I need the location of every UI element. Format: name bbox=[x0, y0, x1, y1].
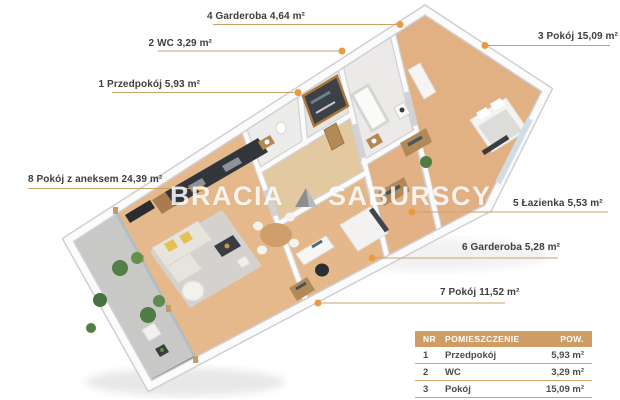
legend-header-nr: NR bbox=[423, 334, 445, 344]
room-label-4: 4 Garderoba 4,64 m² bbox=[207, 11, 305, 22]
room-label-7: 7 Pokój 11,52 m² bbox=[440, 287, 519, 298]
room-label-2: 2 WC 3,29 m² bbox=[149, 38, 212, 49]
legend-row-2-nr: 2 bbox=[423, 367, 445, 378]
room-label-1: 1 Przedpokój 5,93 m² bbox=[99, 79, 200, 90]
legend-row-3-nr: 3 bbox=[423, 384, 445, 395]
legend-row-3: 3 Pokój 15,09 m² bbox=[415, 381, 592, 398]
floorplan-page: 4 Garderoba 4,64 m² 2 WC 3,29 m² 1 Przed… bbox=[0, 0, 620, 400]
legend-row-1: 1 Przedpokój 5,93 m² bbox=[415, 347, 592, 364]
room-label-8: 8 Pokój z aneksem 24,39 m² bbox=[28, 174, 162, 185]
legend-row-3-room: Pokój bbox=[445, 384, 546, 395]
room3-plant bbox=[420, 156, 432, 168]
legend-header-row: NR POMIESZCZENIE POW. bbox=[415, 331, 592, 347]
room-label-5: 5 Łazienka 5,53 m² bbox=[513, 198, 603, 209]
legend-header-area: POW. bbox=[560, 334, 584, 344]
legend-row-1-room: Przedpokój bbox=[445, 350, 551, 361]
legend-row-3-area: 15,09 m² bbox=[546, 384, 584, 395]
legend-table: NR POMIESZCZENIE POW. 1 Przedpokój 5,93 … bbox=[415, 331, 592, 400]
legend-row-2: 2 WC 3,29 m² bbox=[415, 364, 592, 381]
room-label-3: 3 Pokój 15,09 m² bbox=[538, 31, 618, 42]
legend-row-1-area: 5,93 m² bbox=[551, 350, 584, 361]
brand-logo-icon bbox=[293, 186, 319, 208]
brand-word-1: BRACIA bbox=[170, 181, 284, 212]
legend-header-room: POMIESZCZENIE bbox=[445, 334, 560, 344]
brand-word-2: SABURSCY bbox=[328, 181, 492, 212]
brand-watermark: BRACIA SABURSCY bbox=[170, 181, 492, 212]
armchair bbox=[182, 281, 204, 301]
legend-row-2-area: 3,29 m² bbox=[551, 367, 584, 378]
legend-row-2-room: WC bbox=[445, 367, 551, 378]
room-label-6: 6 Garderoba 5,28 m² bbox=[462, 242, 560, 253]
legend-row-1-nr: 1 bbox=[423, 350, 445, 361]
